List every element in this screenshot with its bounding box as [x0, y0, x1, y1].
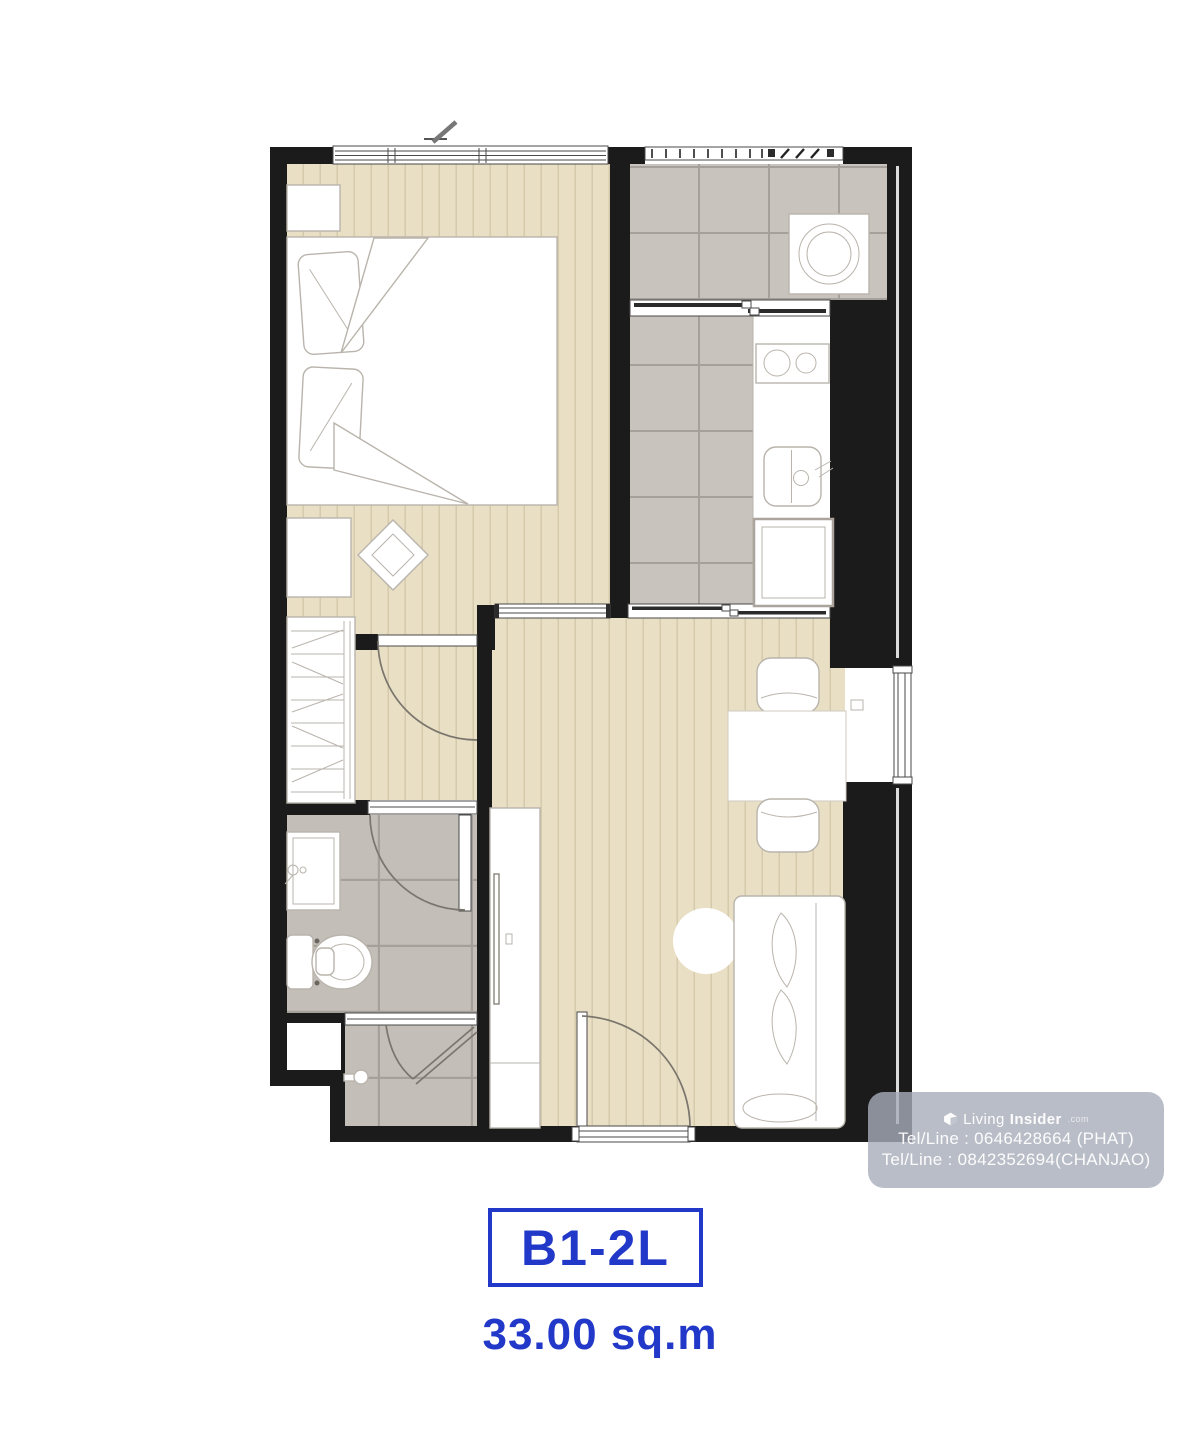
pillow	[298, 251, 365, 355]
watermark-brand: LivingInsider.com	[943, 1111, 1089, 1128]
dining-chair-top	[757, 658, 819, 713]
vanity-sink	[285, 832, 340, 910]
dining-table	[728, 711, 846, 801]
wall-bathroom-bottom	[283, 1013, 345, 1023]
wall-right-mass-b	[843, 782, 912, 1128]
bedroom-sliding-partition	[495, 604, 610, 618]
shower-threshold	[345, 1013, 477, 1025]
dining-window	[845, 666, 912, 784]
wall-bedroom-kitchen-divider	[610, 147, 630, 618]
window-opening-arrow-icon	[424, 122, 456, 142]
unit-code-badge: B1-2L	[488, 1208, 703, 1287]
brand-bold: Insider	[1010, 1111, 1062, 1128]
wall-right-upper	[887, 147, 912, 300]
unit-area: 33.00 sq.m	[400, 1310, 800, 1360]
washing-machine	[789, 214, 869, 294]
livinginsider-logo-icon	[943, 1112, 958, 1126]
dining-chair-bottom	[757, 799, 819, 852]
stove	[756, 344, 829, 383]
refrigerator	[754, 519, 833, 606]
nightstand-top	[287, 185, 340, 231]
watermark-tel-line-2: Tel/Line : 0842352694(CHANJAO)	[882, 1150, 1151, 1170]
nightstand-bottom	[287, 518, 351, 597]
bathroom-door-threshold	[368, 801, 477, 814]
watermark: LivingInsider.com Tel/Line : 0646428664 …	[868, 1092, 1164, 1188]
kitchen-fixtures	[754, 344, 833, 606]
wall-bedroom-door-jamb	[352, 634, 378, 650]
wall-edge-highlight-upper	[896, 166, 899, 658]
kitchen-floor	[630, 316, 753, 607]
balcony-sliding-door	[630, 300, 830, 316]
sofa	[734, 896, 845, 1128]
wall-left	[270, 147, 287, 1070]
entry-threshold	[572, 1126, 695, 1142]
balcony-railing	[645, 147, 843, 160]
wardrobe	[287, 617, 355, 803]
toilet	[287, 935, 372, 989]
watermark-tel-line-1: Tel/Line : 0646428664 (PHAT)	[898, 1129, 1134, 1149]
wall-shower-left-thin	[341, 1013, 345, 1070]
side-pouf	[673, 908, 739, 974]
brand-suffix: .com	[1068, 1114, 1089, 1124]
window-sill	[845, 668, 895, 782]
tv	[494, 874, 499, 1004]
wall-edge-highlight-lower	[896, 788, 899, 1124]
wall-partition-corner	[477, 605, 495, 650]
bedroom-window	[333, 146, 608, 164]
floor-plan-page: LivingInsider.com Tel/Line : 0646428664 …	[0, 0, 1200, 1449]
brand-prefix: Living	[963, 1111, 1005, 1128]
wall-right-mass-a	[830, 300, 912, 668]
wall-step-horizontal	[270, 1070, 332, 1086]
tv-cabinet	[490, 808, 540, 1128]
unit-code: B1-2L	[521, 1219, 670, 1277]
